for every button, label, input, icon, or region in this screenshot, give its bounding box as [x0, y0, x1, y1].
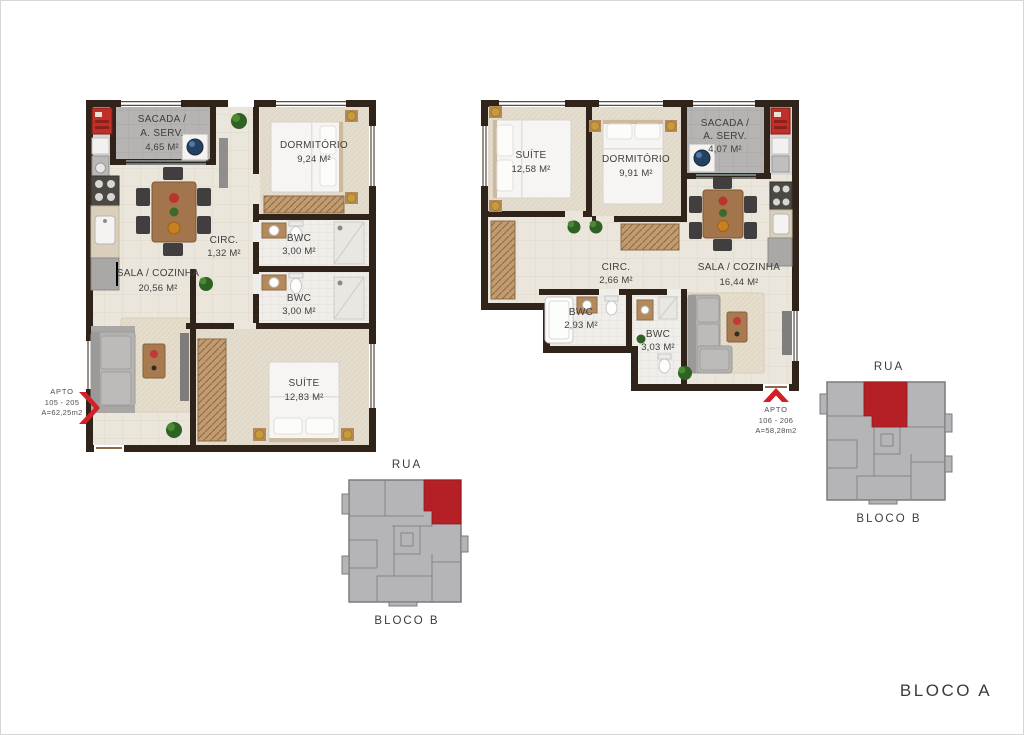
apto-word: APTO [734, 405, 818, 416]
label-suite-area: 12,58 M² [511, 164, 550, 175]
kitchen-stove [770, 182, 792, 210]
label-sacada-area: 4,07 M² [708, 144, 742, 155]
apto-area: A=58,28m2 [734, 426, 818, 437]
wardrobe-suite [198, 339, 226, 441]
label-sala: SALA / COZINHA [117, 268, 200, 279]
block-label: BLOCO B [374, 615, 439, 627]
bench-dormitorio [264, 196, 344, 213]
coffee-table [143, 344, 165, 378]
label-bwc1-area: 3,00 M² [282, 246, 316, 257]
label-sacada-2: A. SERV. [140, 128, 184, 139]
apto-tag-106: APTO 106 - 206 A=58,28m2 [734, 405, 818, 437]
kitchen-stove [91, 176, 119, 206]
label-suite: SUÍTE [289, 376, 320, 389]
plant [590, 221, 603, 234]
label-sacada-area: 4,65 M² [145, 142, 179, 153]
label-bwc1: BWC [569, 307, 593, 318]
tv-sideboard [180, 333, 189, 401]
plant [678, 366, 692, 380]
label-sacada: SACADA / [701, 118, 750, 129]
label-dormitorio-area: 9,91 M² [619, 168, 653, 179]
building-footprint [819, 380, 959, 506]
label-sacada: SACADA / [138, 114, 187, 125]
coffee-table [727, 312, 747, 342]
utility-gas-box [771, 108, 790, 134]
kitchen-counter-sink [91, 206, 119, 258]
block-a-title: BLOCO A [881, 681, 1011, 701]
label-bwc1-area: 2,93 M² [564, 320, 598, 331]
apto-arrow-up-icon [762, 386, 790, 403]
plant [231, 113, 247, 129]
apto-units: 106 - 206 [734, 416, 818, 427]
label-bwc2-area: 3,03 M² [641, 342, 675, 353]
label-suite-area: 12,83 M² [284, 392, 323, 403]
street-label: RUA [874, 361, 904, 373]
label-bwc2: BWC [646, 329, 670, 340]
washing-machine [182, 134, 208, 160]
label-dormitorio: DORMITÓRIO [280, 138, 348, 151]
apto-arrow-right-icon [78, 391, 100, 425]
label-bwc2: BWC [287, 293, 311, 304]
keyplan-apto-105: RUA BLOCO B [337, 459, 477, 627]
label-circ-area: 1,32 M² [207, 248, 241, 259]
floorplan-apto-106: SUÍTE 12,58 M² DORMITÓRIO 9,91 M² SACADA… [481, 96, 801, 396]
floorplan-apto-105: SACADA / A. SERV. 4,65 M² DORMITÓRIO 9,2… [86, 96, 376, 456]
brochure-page: SACADA / A. SERV. 4,65 M² DORMITÓRIO 9,2… [0, 0, 1024, 735]
kitchen-counter-sink [770, 210, 792, 238]
block-label: BLOCO B [856, 513, 921, 525]
plant [166, 422, 182, 438]
utility-fixtures [92, 138, 109, 180]
label-circ-area: 2,66 M² [599, 275, 633, 286]
label-bwc2-area: 3,00 M² [282, 306, 316, 317]
bench [621, 224, 679, 250]
refrigerator [91, 258, 119, 290]
label-suite: SUÍTE [516, 148, 547, 161]
label-circ: CIRC. [602, 262, 631, 273]
label-sala-area: 20,56 M² [138, 283, 177, 294]
street-label: RUA [392, 459, 422, 471]
label-bwc1: BWC [287, 233, 311, 244]
label-sala-area: 16,44 M² [719, 277, 758, 288]
plant [568, 221, 581, 234]
plant [199, 277, 213, 291]
tv-sideboard [782, 311, 792, 355]
label-circ: CIRC. [210, 235, 239, 246]
wardrobe [491, 221, 515, 299]
building-footprint [337, 478, 477, 608]
label-dormitorio: DORMITÓRIO [602, 152, 670, 165]
label-sacada-2: A. SERV. [703, 131, 747, 142]
label-dormitorio-area: 9,24 M² [297, 154, 331, 165]
label-sala: SALA / COZINHA [698, 262, 781, 273]
utility-gas-box [92, 108, 112, 134]
keyplan-apto-106: RUA BLOCO B [819, 361, 959, 525]
